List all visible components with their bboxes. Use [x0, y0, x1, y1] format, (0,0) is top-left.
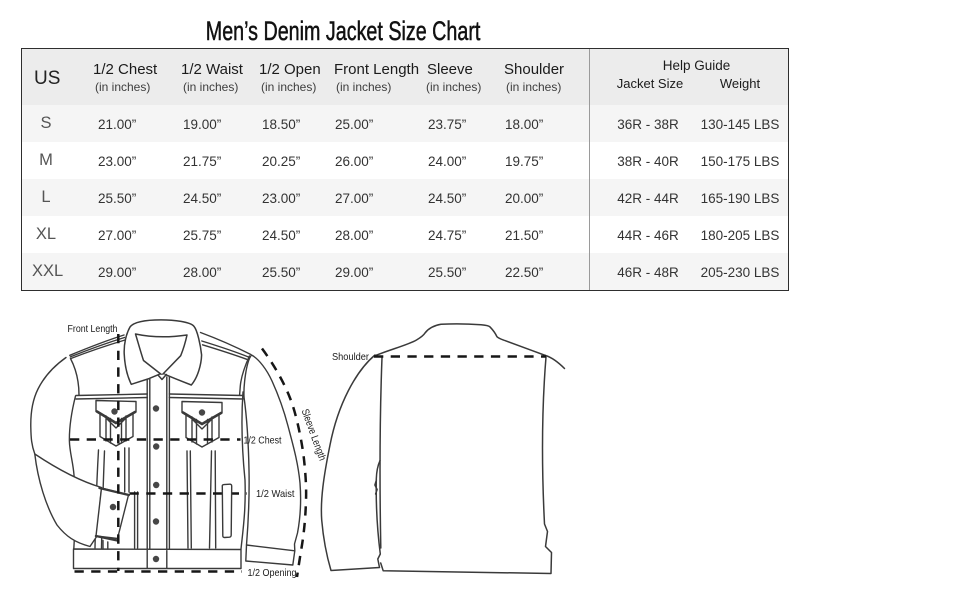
svg-text:Sleeve Length: Sleeve Length: [299, 407, 329, 462]
svg-text:1/2 Waist: 1/2 Waist: [256, 488, 295, 500]
svg-text:Shoulder: Shoulder: [332, 351, 369, 363]
svg-text:Front Length: Front Length: [68, 323, 118, 335]
svg-text:1/2 Opening: 1/2 Opening: [248, 567, 297, 579]
svg-text:1/2 Chest: 1/2 Chest: [244, 435, 282, 447]
